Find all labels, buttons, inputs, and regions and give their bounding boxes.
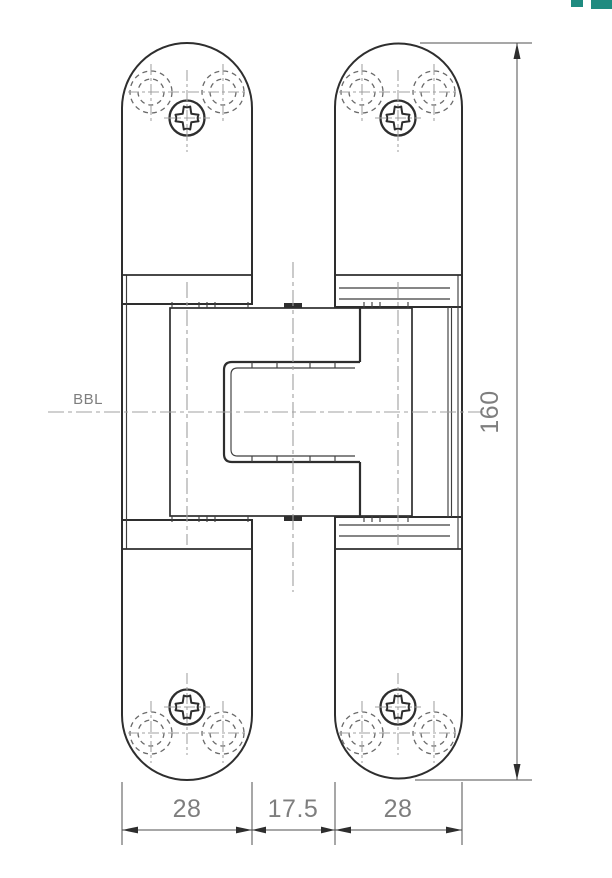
dim-label-axis-gap: 17.5	[268, 795, 319, 823]
leaf-top-left	[122, 43, 252, 304]
hinge-technical-drawing: 28 17.5 28 160 BBL	[0, 0, 612, 878]
inner-frame-rect	[170, 308, 412, 516]
dim-label-leaf-width-left: 28	[173, 795, 202, 823]
logo-fragment-icon	[571, 0, 583, 7]
leaf-top-right	[335, 44, 462, 308]
centerline-label: BBL	[73, 391, 103, 408]
brand-logo-cropped	[571, 0, 612, 9]
hinge-inner-frame	[170, 302, 412, 522]
dim-label-overall-height: 160	[476, 390, 504, 433]
logo-fragment-icon	[591, 0, 612, 9]
dim-label-leaf-width-right: 28	[384, 795, 413, 823]
page: 28 17.5 28 160 BBL	[0, 0, 612, 878]
